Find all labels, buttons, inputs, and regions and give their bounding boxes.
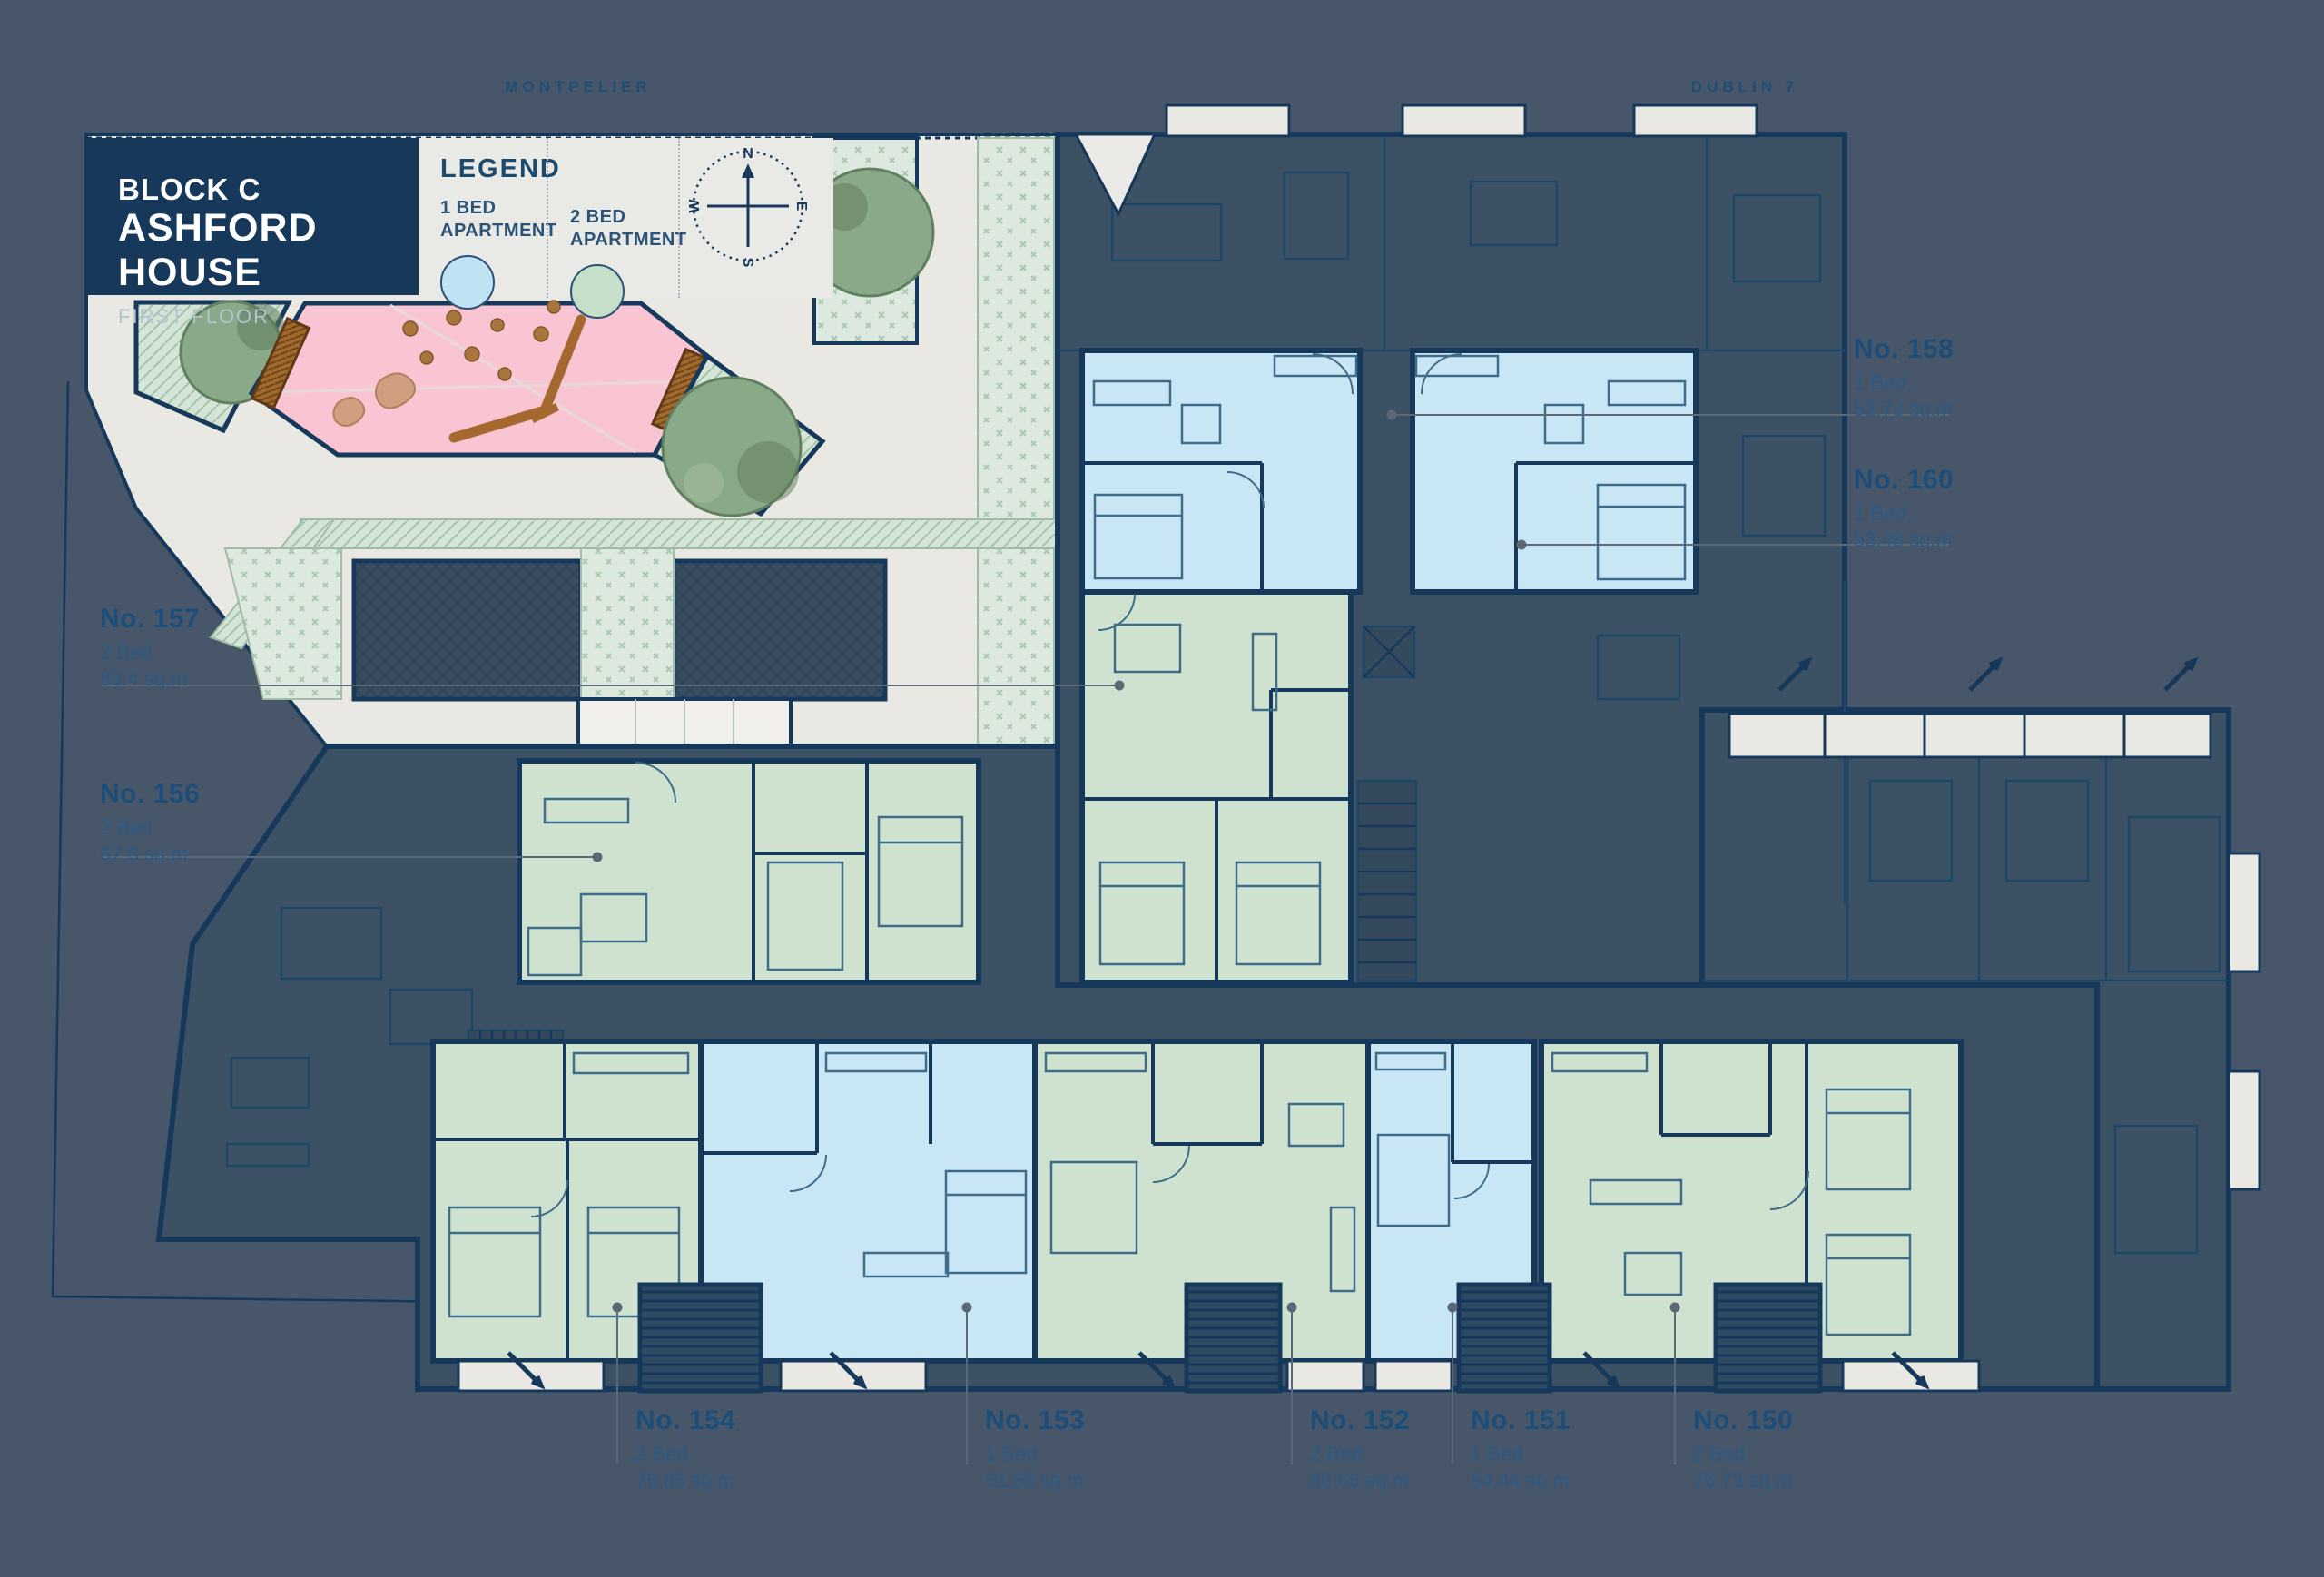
apartment-area: 76.73 sq.m (1693, 1468, 1793, 1494)
apartment-beds: 2 Bed (635, 1442, 735, 1468)
apartment-beds: 2 Bed (100, 640, 200, 666)
apartment-region-160[interactable] (1413, 350, 1696, 592)
compass-w: W (687, 199, 703, 213)
compass-e: E (793, 202, 809, 212)
apartment-beds: 1 Bed (985, 1442, 1085, 1468)
callout-152: No. 152 2 Bed 80.66 sq.m (1310, 1405, 1410, 1493)
one-bed-swatch-icon (440, 255, 495, 310)
apartment-beds: 2 Bed (1310, 1442, 1410, 1468)
legend: LEGEND 1 BED APARTMENT 2 BED APARTMENT N… (419, 138, 833, 298)
apartment-area: 67.8 sq.m (100, 842, 200, 868)
legend-label-2bed: 2 BED APARTMENT (570, 206, 678, 251)
apartment-area: 51.55 sq.m (985, 1468, 1085, 1494)
apartment-number: No. 154 (635, 1405, 735, 1436)
apartment-beds: 2 Bed (100, 815, 200, 842)
apartment-number: No. 160 (1854, 465, 1954, 496)
apartment-number: No. 151 (1471, 1405, 1571, 1436)
legend-item-2bed: 2 BED APARTMENT (547, 138, 678, 298)
apartment-number: No. 150 (1693, 1405, 1793, 1436)
callout-154: No. 154 2 Bed 76.85 sq.m (635, 1405, 735, 1493)
callout-160: No. 160 1 Bed 53.48 sq.m (1854, 465, 1954, 553)
floorplan-page: MONTPELIER DUBLIN 7 BLOCK C ASHFORD HOUS… (0, 0, 2324, 1577)
street-label-montpelier: MONTPELIER (505, 78, 651, 96)
apartment-number: No. 158 (1854, 334, 1954, 365)
apartment-area: 76.85 sq.m (635, 1468, 735, 1494)
apartment-number: No. 156 (100, 779, 200, 810)
apartment-beds: 1 Bed (1854, 501, 1954, 527)
apartment-area: 53.48 sq.m (1854, 527, 1954, 554)
apartment-area: 80.66 sq.m (1310, 1468, 1410, 1494)
legend-title: LEGEND (440, 154, 547, 184)
house-name: ASHFORD HOUSE (118, 206, 419, 296)
apartment-area: 52.73 sq.m (1854, 397, 1954, 423)
callout-156: No. 156 2 Bed 67.8 sq.m (100, 779, 200, 867)
apartment-area: 83.4 sq.m (100, 666, 200, 693)
legend-label-1bed: 1 BED APARTMENT (440, 197, 547, 242)
legend-compass: N E S W (678, 138, 833, 298)
apartment-number: No. 153 (985, 1405, 1085, 1436)
apartment-beds: 1 Bed (1471, 1442, 1571, 1468)
apartment-beds: 1 Bed (1854, 370, 1954, 397)
apartment-region-156[interactable] (519, 761, 979, 982)
callout-157: No. 157 2 Bed 83.4 sq.m (100, 604, 200, 692)
title-block: BLOCK C ASHFORD HOUSE FIRST FLOOR (84, 138, 419, 295)
apartment-region-158[interactable] (1082, 350, 1360, 592)
apartment-area: 54.44 sq.m (1471, 1468, 1571, 1494)
corridor-planting-strip (978, 138, 1054, 779)
apartment-number: No. 152 (1310, 1405, 1410, 1436)
callout-150: No. 150 2 Bed 76.73 sq.m (1693, 1405, 1793, 1493)
roof-area (225, 548, 885, 699)
two-bed-swatch-icon (570, 264, 625, 319)
compass-n: N (743, 146, 753, 162)
compass-s: S (740, 258, 755, 268)
callout-158: No. 158 1 Bed 52.73 sq.m (1854, 334, 1954, 422)
apartment-number: No. 157 (100, 604, 200, 635)
floor-name: FIRST FLOOR (118, 305, 419, 329)
callout-153: No. 153 1 Bed 51.55 sq.m (985, 1405, 1085, 1493)
compass-icon: N E S W (680, 138, 816, 274)
legend-item-1bed: LEGEND 1 BED APARTMENT (419, 138, 547, 298)
apartment-beds: 2 Bed (1693, 1442, 1793, 1468)
block-name: BLOCK C (118, 174, 419, 206)
street-label-dublin7: DUBLIN 7 (1691, 78, 1798, 96)
callout-151: No. 151 1 Bed 54.44 sq.m (1471, 1405, 1571, 1493)
